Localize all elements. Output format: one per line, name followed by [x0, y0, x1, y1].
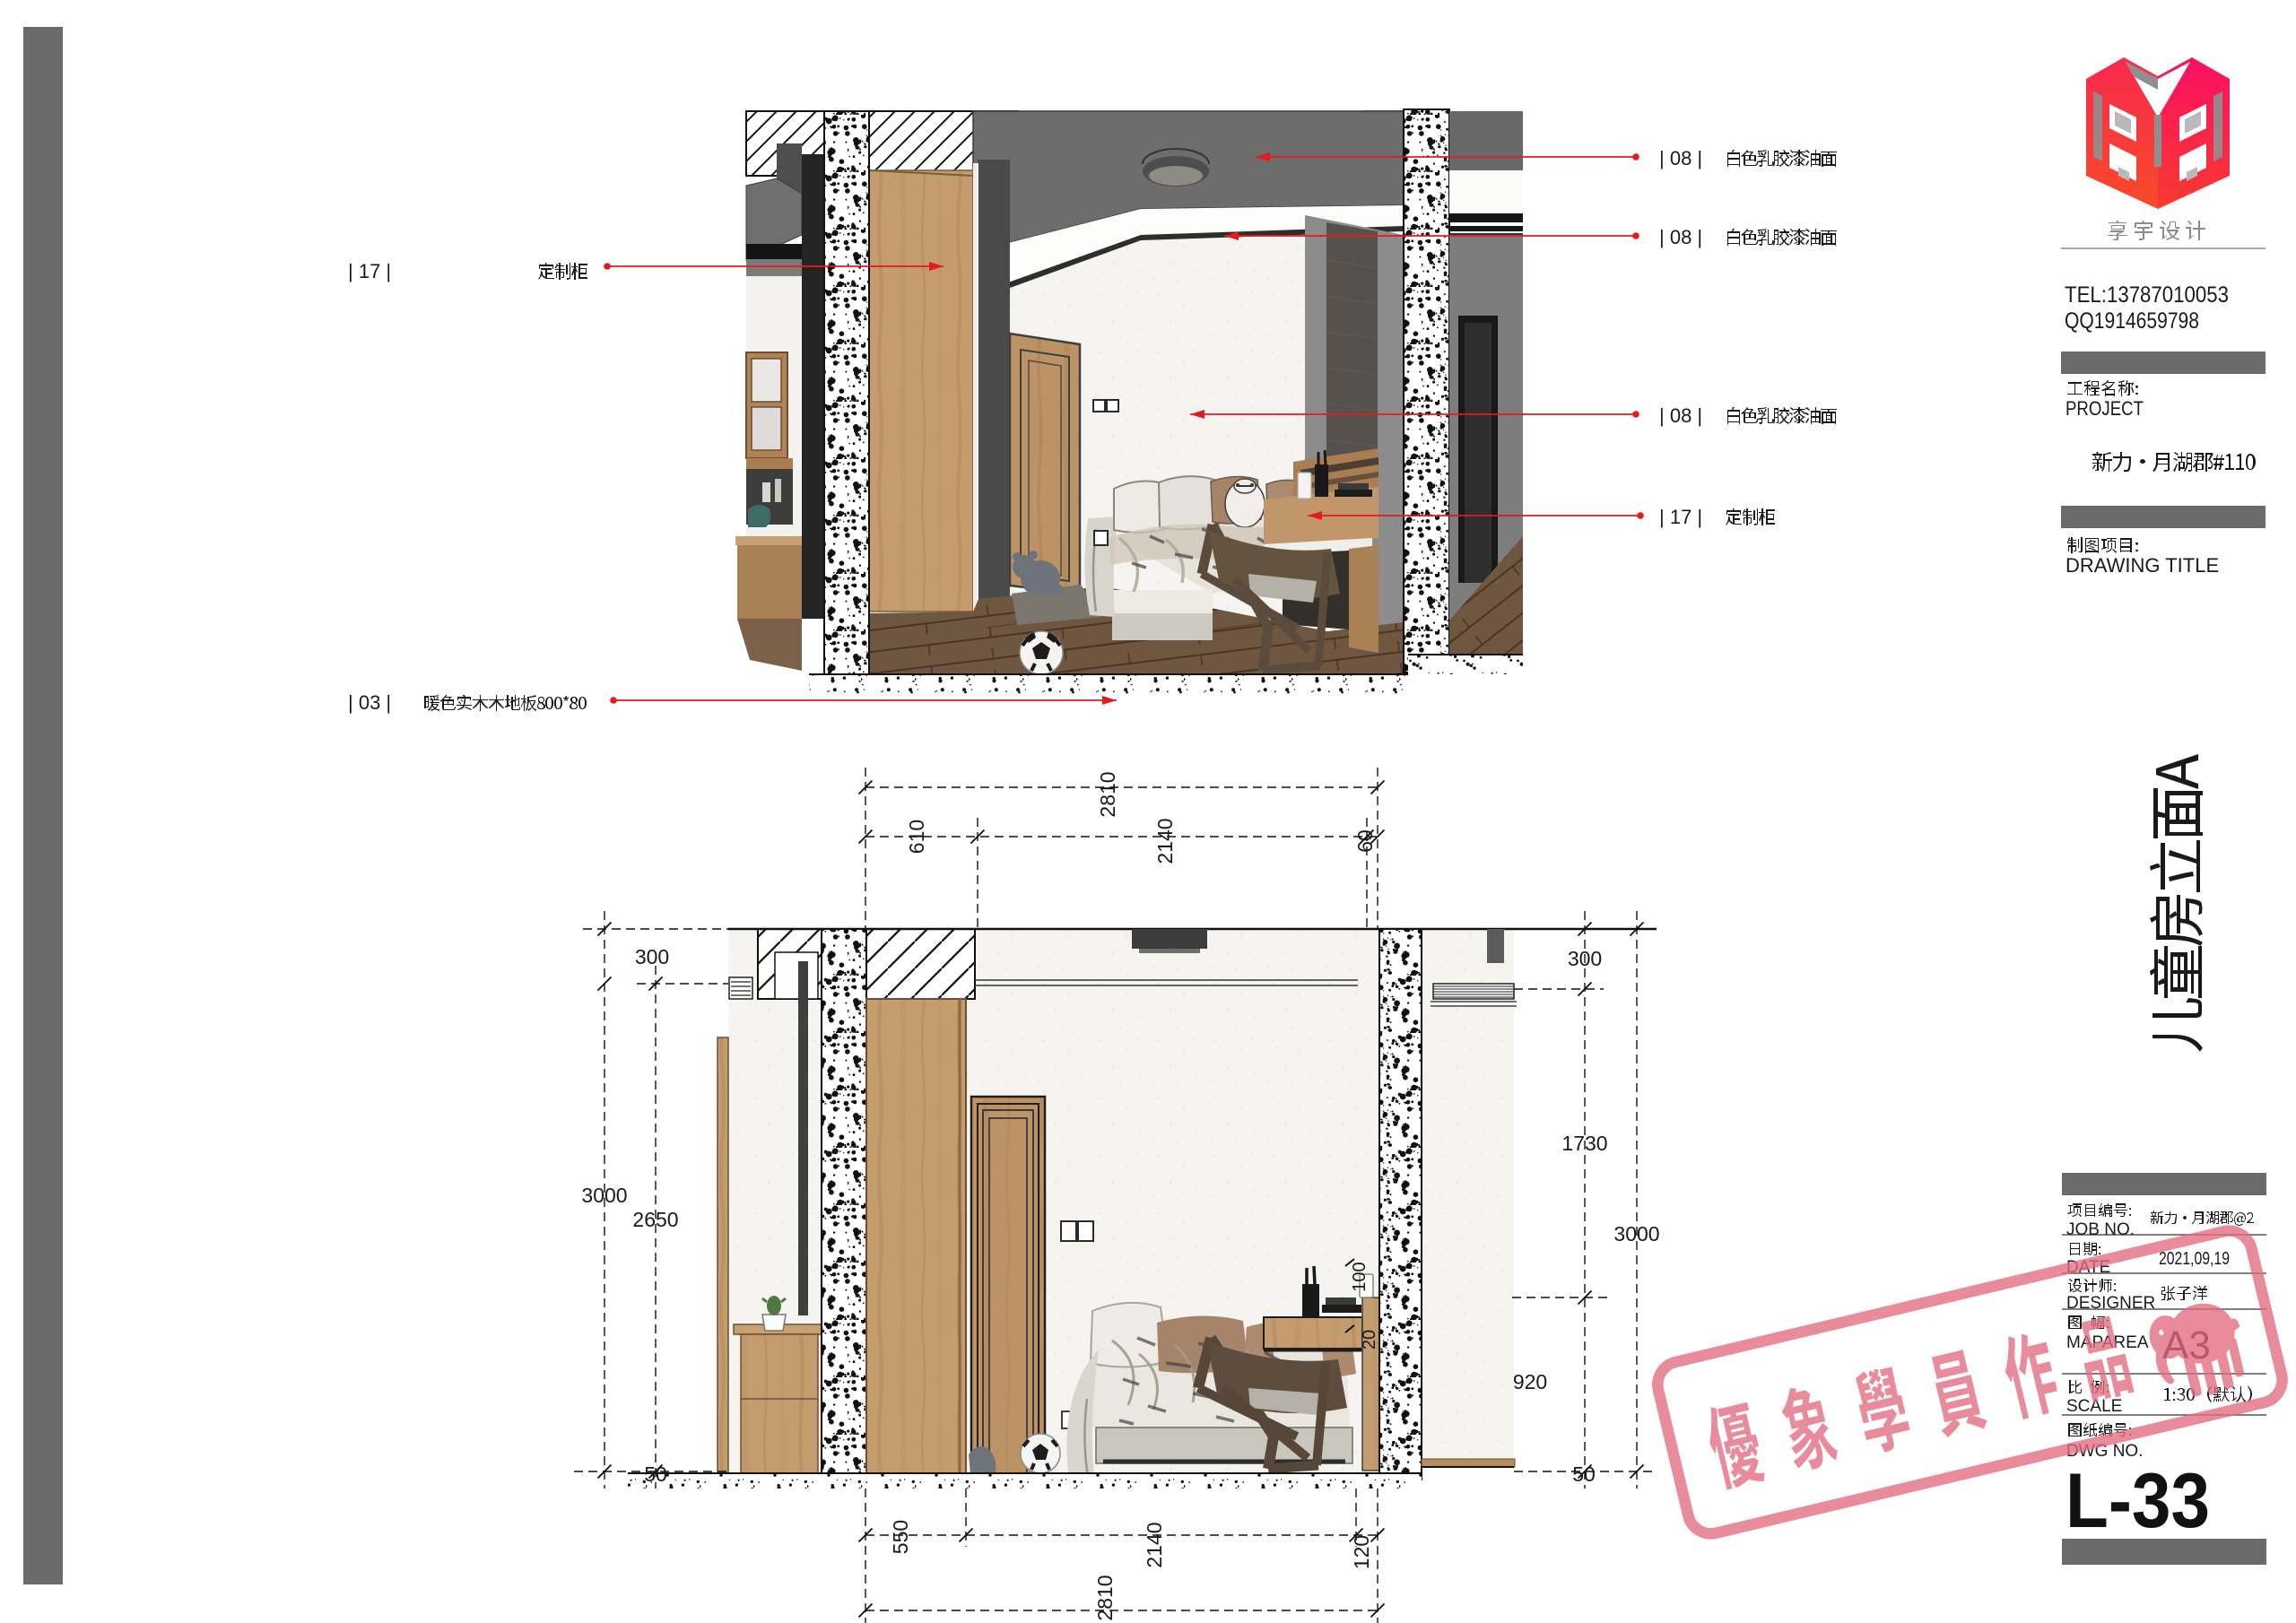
- svg-text:1730: 1730: [1561, 1132, 1607, 1155]
- svg-text:300: 300: [635, 945, 669, 968]
- svg-text:JOB NO.: JOB NO.: [2066, 1220, 2135, 1239]
- svg-text:| 08 |: | 08 |: [1659, 147, 1702, 169]
- svg-text:PROJECT: PROJECT: [2066, 397, 2144, 420]
- svg-text:2021,09,19: 2021,09,19: [2159, 1249, 2230, 1269]
- svg-text:550: 550: [889, 1520, 912, 1554]
- svg-text:3000: 3000: [581, 1184, 627, 1207]
- svg-text:3000: 3000: [1613, 1222, 1659, 1245]
- svg-text:DESIGNER: DESIGNER: [2066, 1294, 2155, 1313]
- svg-text:| 08 |: | 08 |: [1659, 404, 1702, 427]
- svg-text:610: 610: [905, 820, 928, 854]
- svg-text:2810: 2810: [1093, 1575, 1117, 1620]
- svg-text:120: 120: [1350, 1535, 1373, 1569]
- svg-text:920: 920: [1513, 1370, 1547, 1393]
- svg-text:2650: 2650: [632, 1208, 678, 1231]
- svg-text:60: 60: [1353, 829, 1377, 853]
- svg-text:L-33: L-33: [2066, 1458, 2210, 1544]
- svg-text:| 03 |: | 03 |: [348, 691, 391, 714]
- svg-text:| 17 |: | 17 |: [1659, 506, 1702, 528]
- svg-text:50: 50: [1572, 1462, 1596, 1486]
- svg-text:2810: 2810: [1096, 771, 1119, 817]
- svg-text:2140: 2140: [1143, 1522, 1166, 1567]
- svg-text:300: 300: [1568, 947, 1602, 970]
- svg-text:50: 50: [644, 1462, 667, 1486]
- svg-text:| 08 |: | 08 |: [1659, 226, 1702, 248]
- svg-text:DRAWING TITLE: DRAWING TITLE: [2066, 554, 2219, 577]
- svg-text:2140: 2140: [1153, 818, 1177, 864]
- svg-text:TEL:13787010053: TEL:13787010053: [2065, 282, 2229, 308]
- svg-text:QQ1914659798: QQ1914659798: [2065, 308, 2199, 334]
- svg-text:20: 20: [1360, 1330, 1379, 1350]
- svg-text:| 17 |: | 17 |: [348, 260, 391, 282]
- svg-text:100: 100: [1350, 1262, 1370, 1291]
